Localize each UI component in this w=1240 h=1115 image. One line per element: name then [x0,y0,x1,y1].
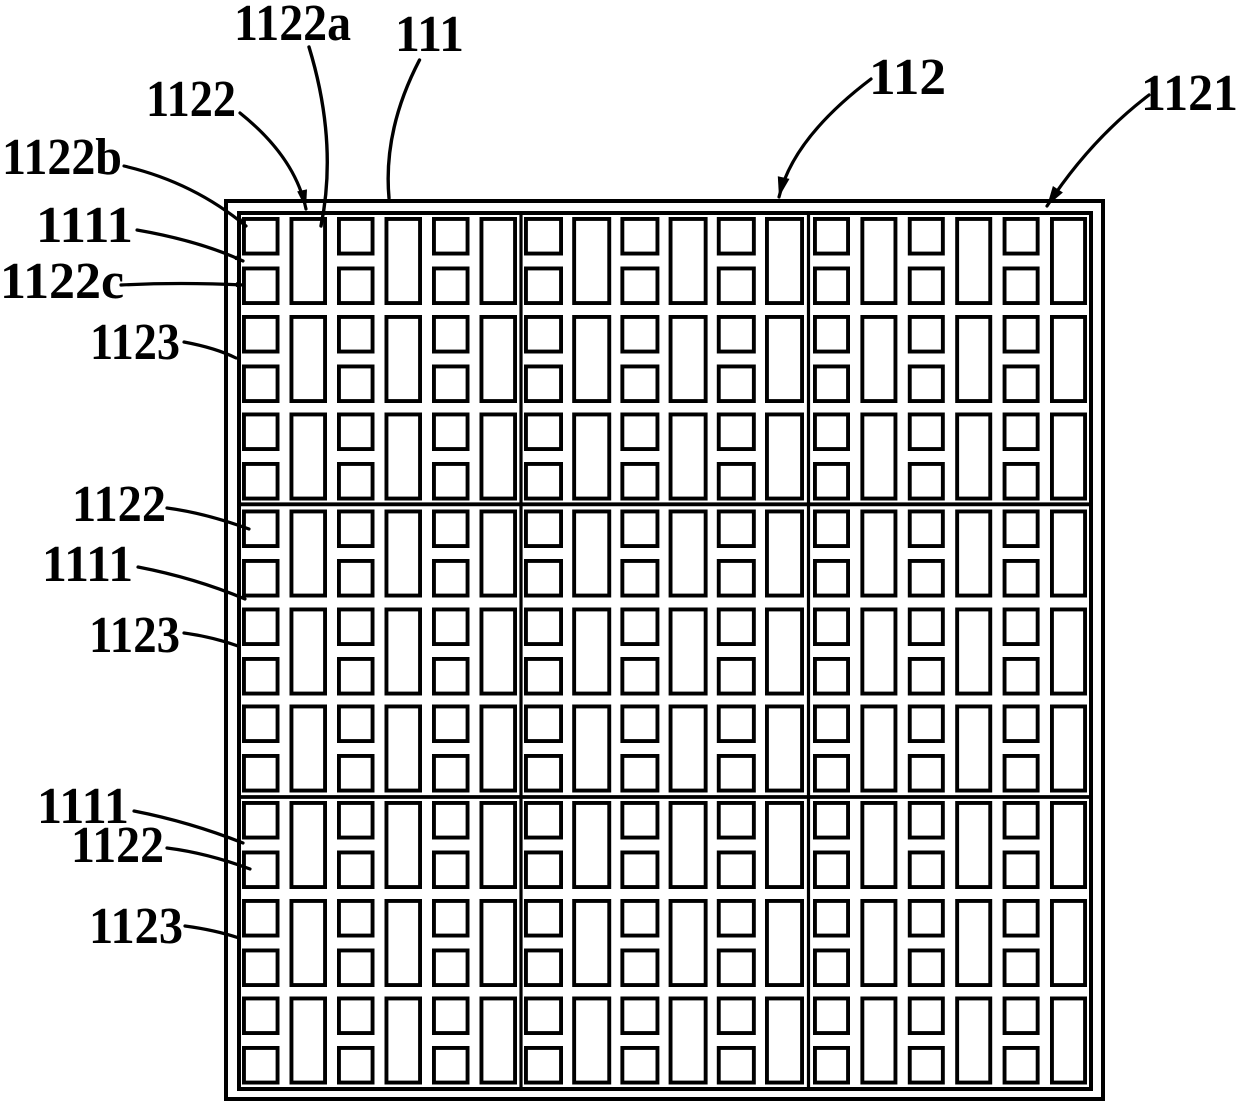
svg-text:1123: 1123 [89,898,183,955]
svg-text:1111: 1111 [42,536,133,593]
svg-text:111: 111 [395,6,464,63]
svg-text:1122: 1122 [72,476,166,533]
svg-text:1122b: 1122b [2,129,122,186]
svg-text:1123: 1123 [89,607,180,664]
svg-text:112: 112 [869,49,946,106]
svg-text:1122: 1122 [71,817,164,874]
svg-text:1121: 1121 [1141,65,1238,122]
svg-text:1123: 1123 [90,314,180,371]
svg-text:1122a: 1122a [234,0,351,52]
svg-text:1122: 1122 [146,71,236,128]
svg-text:1122c: 1122c [0,253,124,310]
svg-text:1111: 1111 [36,197,133,254]
